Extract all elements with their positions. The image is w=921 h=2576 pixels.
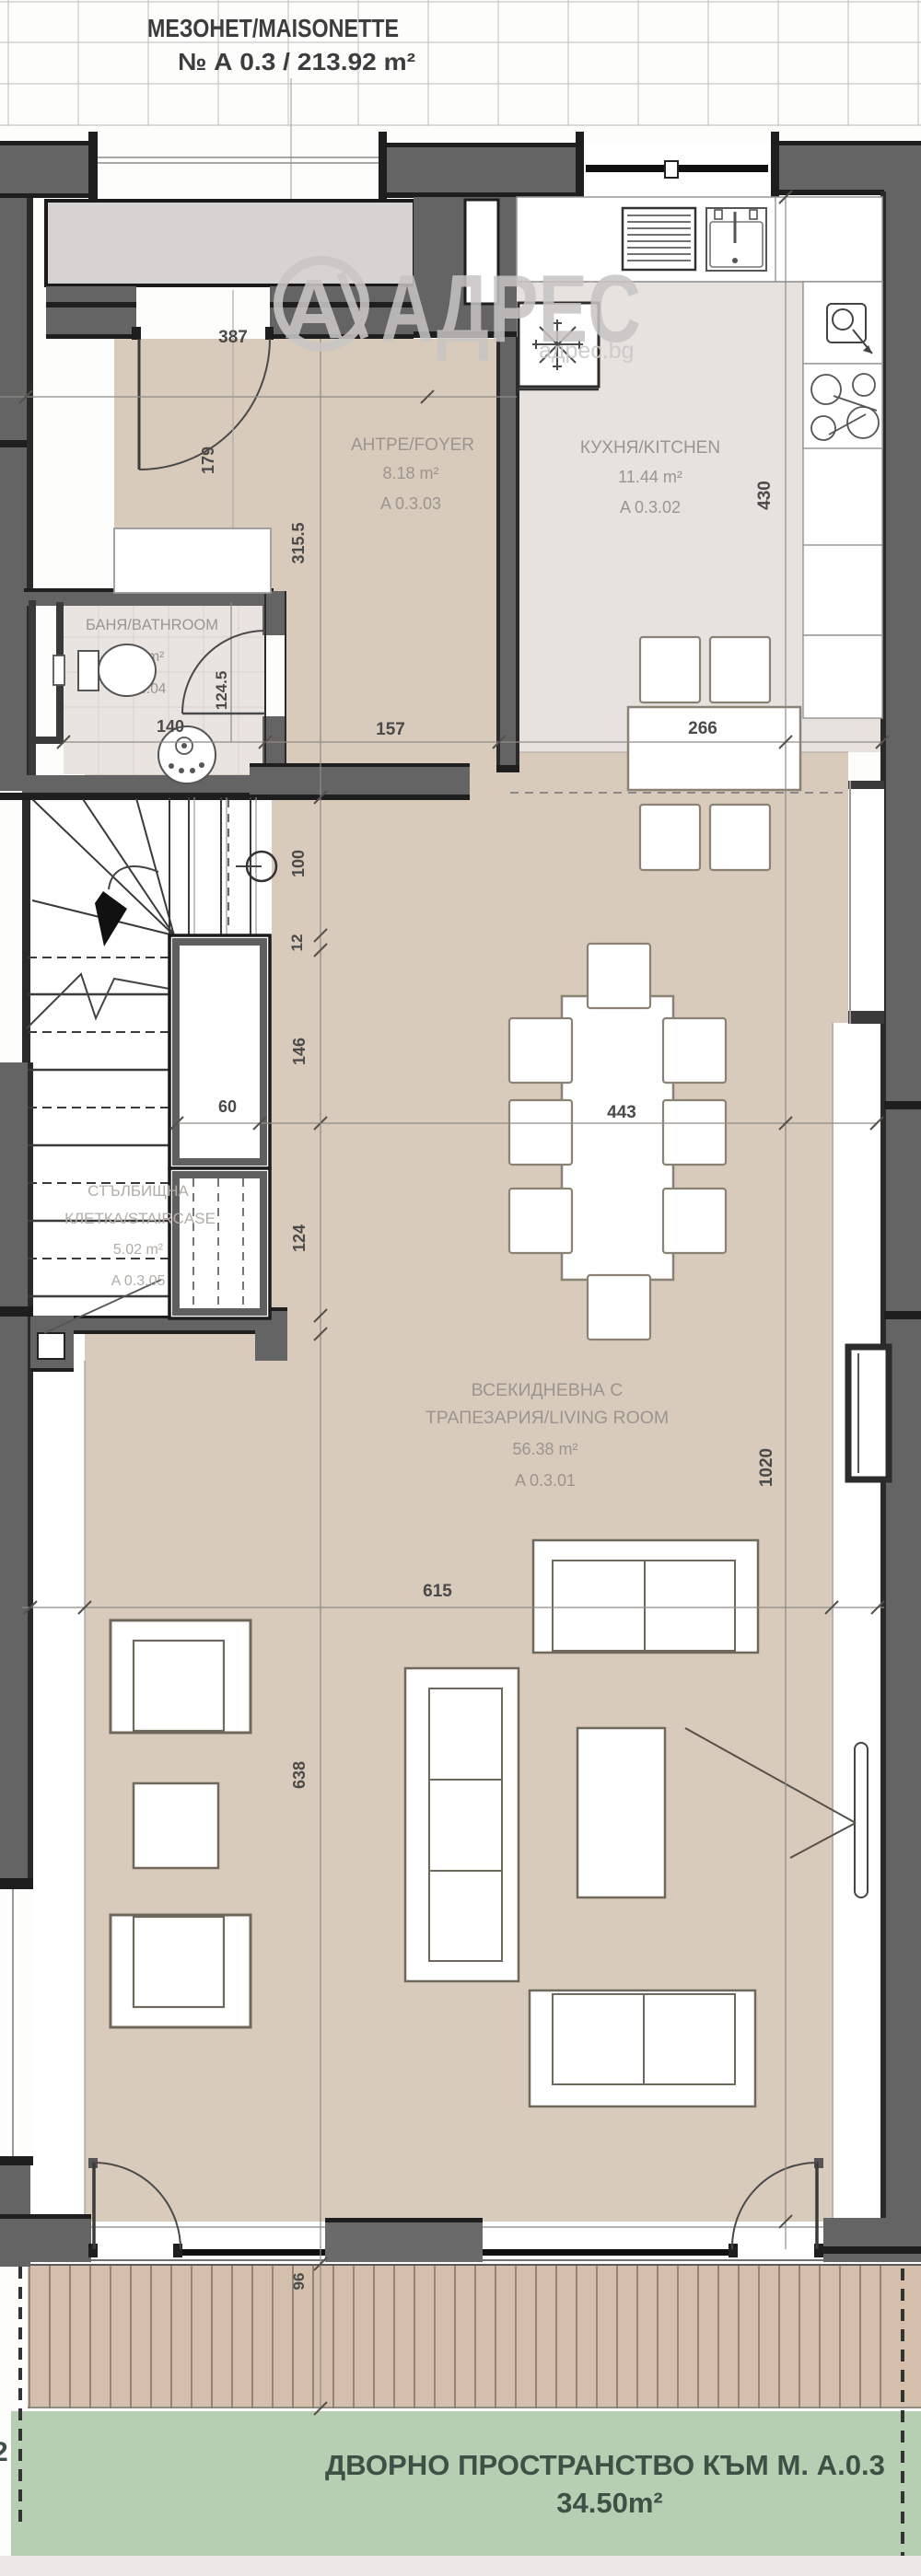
svg-text:АНТРЕ/FOYER: АНТРЕ/FOYER: [351, 435, 474, 455]
svg-text:140: 140: [157, 717, 184, 736]
svg-text:А: А: [284, 262, 344, 356]
svg-text:5.02 m²: 5.02 m²: [113, 1242, 164, 1258]
svg-text:157: 157: [376, 720, 405, 739]
svg-text:A 0.3.01: A 0.3.01: [515, 1471, 576, 1490]
svg-text:КЛЕТКА/STAIRCASE: КЛЕТКА/STAIRCASE: [64, 1210, 216, 1227]
svg-text:387: 387: [218, 328, 248, 347]
svg-text:КУХНЯ/KITCHEN: КУХНЯ/KITCHEN: [580, 438, 720, 458]
svg-text:ТРАПЕЗАРИЯ/LIVING ROOM: ТРАПЕЗАРИЯ/LIVING ROOM: [426, 1408, 669, 1428]
svg-text:315.5: 315.5: [289, 522, 308, 563]
svg-text:A 0.3.03: A 0.3.03: [380, 494, 441, 513]
svg-text:№ А 0.3 / 213.92 m²: № А 0.3 / 213.92 m²: [178, 48, 415, 75]
svg-text:56.38 m²: 56.38 m²: [512, 1440, 577, 1458]
svg-text:СТЪЛБИЩНА: СТЪЛБИЩНА: [87, 1182, 189, 1200]
svg-text:ДВОРНО ПРОСТРАНСТВО КЪМ М. А.0: ДВОРНО ПРОСТРАНСТВО КЪМ М. А.0.3: [325, 2449, 885, 2481]
svg-text:96: 96: [290, 2273, 308, 2291]
svg-text:ВСЕКИДНЕВНА С: ВСЕКИДНЕВНА С: [472, 1380, 624, 1400]
svg-text:638: 638: [290, 1761, 309, 1789]
svg-text:124.5: 124.5: [213, 671, 230, 711]
svg-text:12: 12: [288, 934, 306, 952]
svg-text:615: 615: [423, 1582, 452, 1601]
svg-text:2: 2: [0, 2437, 8, 2467]
svg-text:443: 443: [607, 1103, 636, 1122]
svg-text:100: 100: [289, 850, 308, 877]
svg-text:179: 179: [199, 447, 217, 474]
svg-text:146: 146: [290, 1038, 309, 1065]
svg-text:266: 266: [688, 719, 717, 738]
svg-text:8.18 m²: 8.18 m²: [382, 464, 438, 482]
svg-text:124: 124: [290, 1224, 309, 1252]
svg-text:11.44 m²: 11.44 m²: [618, 468, 682, 486]
svg-text:A 0.3.05: A 0.3.05: [111, 1273, 166, 1289]
svg-text:1020: 1020: [757, 1448, 776, 1487]
svg-text:A 0.3.02: A 0.3.02: [620, 498, 681, 516]
svg-text:34.50m²: 34.50m²: [556, 2487, 662, 2519]
svg-text:430: 430: [755, 481, 775, 510]
svg-text:60: 60: [218, 1097, 237, 1116]
svg-text:адрес.bg: адрес.bg: [539, 338, 635, 364]
svg-text:МЕЗОНЕТ/MAISONETTE: МЕЗОНЕТ/MAISONETTE: [147, 14, 399, 42]
svg-text:БАНЯ/BATHROOM: БАНЯ/BATHROOM: [86, 617, 218, 633]
